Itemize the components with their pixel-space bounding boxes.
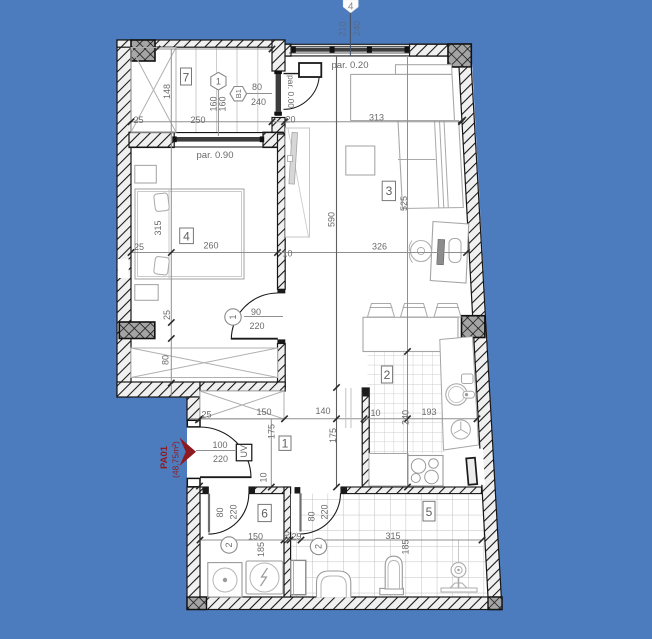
svg-text:220: 220: [320, 504, 330, 519]
svg-text:175: 175: [328, 428, 338, 443]
svg-text:UV: UV: [239, 445, 249, 458]
svg-text:148: 148: [162, 84, 172, 99]
svg-text:80: 80: [215, 507, 225, 517]
svg-text:220: 220: [229, 504, 239, 519]
svg-text:2: 2: [224, 542, 234, 547]
svg-text:20: 20: [285, 114, 295, 124]
svg-text:29: 29: [291, 531, 301, 541]
svg-text:(48.75m²): (48.75m²): [171, 441, 181, 478]
svg-text:1: 1: [216, 77, 221, 87]
svg-text:175: 175: [266, 424, 276, 439]
svg-text:6: 6: [261, 507, 268, 521]
svg-text:185: 185: [256, 542, 266, 557]
svg-text:10: 10: [259, 472, 269, 482]
svg-text:315: 315: [153, 220, 163, 235]
svg-text:10: 10: [282, 531, 292, 541]
svg-text:4: 4: [348, 2, 354, 13]
svg-text:150: 150: [256, 407, 271, 417]
svg-text:10: 10: [370, 408, 380, 418]
svg-text:240: 240: [401, 410, 411, 425]
svg-text:240: 240: [251, 97, 266, 107]
svg-text:260: 260: [203, 240, 218, 250]
svg-text:par. 0.20: par. 0.20: [332, 60, 369, 71]
svg-text:80: 80: [307, 511, 317, 521]
svg-text:220: 220: [213, 454, 228, 464]
svg-text:100: 100: [212, 440, 227, 450]
svg-text:315: 315: [385, 531, 400, 541]
svg-text:525: 525: [399, 196, 409, 211]
svg-text:B1: B1: [234, 89, 243, 98]
svg-text:25: 25: [162, 310, 172, 320]
svg-text:590: 590: [327, 212, 337, 227]
svg-text:25: 25: [201, 409, 211, 419]
svg-text:140: 140: [315, 406, 330, 416]
svg-text:25: 25: [134, 242, 144, 252]
svg-text:240: 240: [352, 21, 362, 36]
svg-text:2: 2: [314, 544, 324, 549]
svg-text:1: 1: [282, 436, 289, 450]
svg-text:10: 10: [282, 248, 292, 258]
svg-text:90: 90: [251, 307, 261, 317]
svg-text:150: 150: [248, 531, 263, 541]
svg-text:25: 25: [133, 115, 143, 125]
svg-text:PA01: PA01: [159, 445, 170, 469]
svg-text:80: 80: [161, 355, 171, 365]
svg-text:80: 80: [252, 82, 262, 92]
svg-text:185: 185: [401, 539, 411, 554]
svg-text:326: 326: [372, 241, 387, 251]
svg-text:1: 1: [228, 314, 238, 319]
svg-text:par. 0.00: par. 0.00: [286, 75, 296, 108]
svg-text:210: 210: [338, 21, 348, 36]
svg-text:220: 220: [249, 321, 264, 331]
svg-text:250: 250: [190, 115, 205, 125]
svg-text:par. 0.90: par. 0.90: [197, 150, 234, 161]
svg-text:4: 4: [183, 230, 190, 244]
svg-text:313: 313: [369, 112, 384, 122]
svg-text:193: 193: [421, 407, 436, 417]
svg-text:2: 2: [384, 368, 391, 382]
svg-text:3: 3: [386, 184, 393, 198]
svg-text:5: 5: [426, 505, 433, 519]
svg-text:7: 7: [183, 71, 190, 85]
svg-text:160: 160: [218, 96, 228, 111]
